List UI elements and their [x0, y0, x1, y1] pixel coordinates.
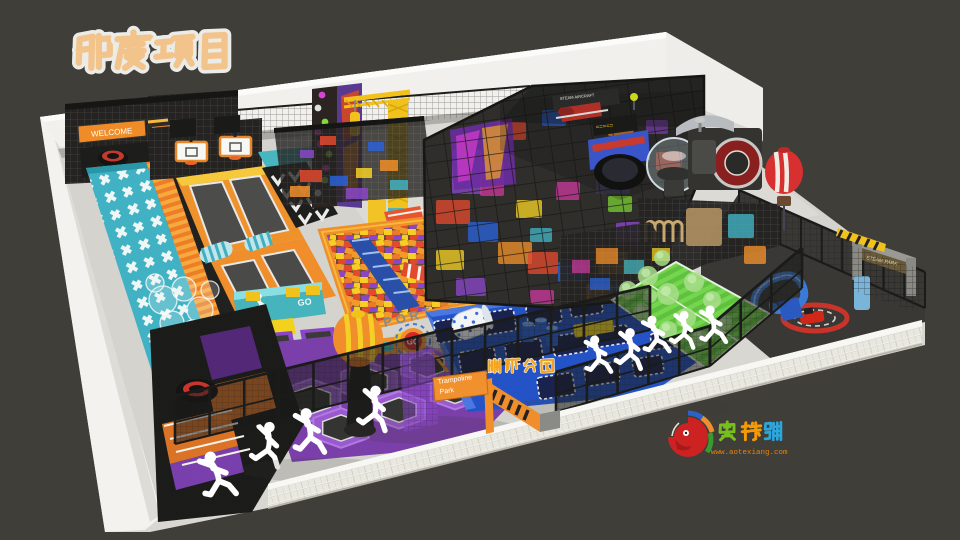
svg-text:GO: GO: [297, 296, 312, 308]
svg-text:www.aotexiang.com: www.aotexiang.com: [711, 449, 788, 457]
